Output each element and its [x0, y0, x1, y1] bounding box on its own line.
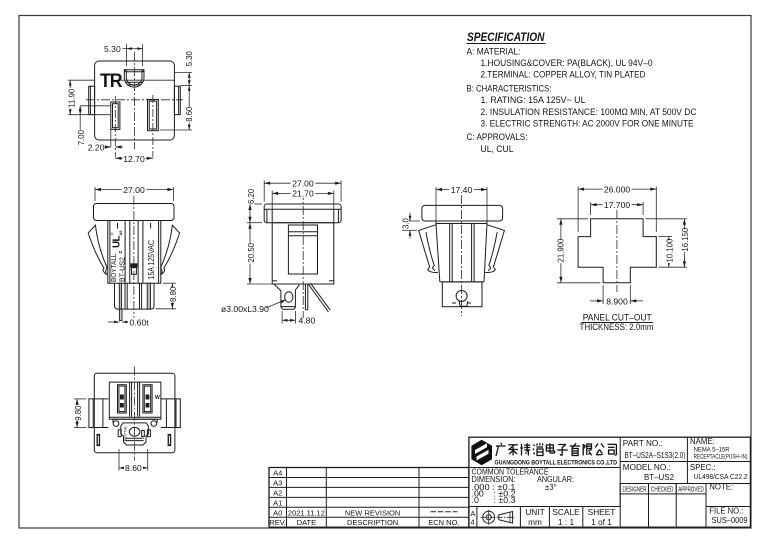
svg-text:26.000: 26.000 [604, 184, 631, 194]
svg-text:17.700: 17.700 [604, 200, 631, 210]
svg-text:BT-US2: BT-US2 [117, 257, 126, 282]
svg-text:SUS–0009: SUS–0009 [712, 516, 748, 525]
svg-text:8.60: 8.60 [125, 463, 142, 473]
svg-text:16.150: 16.150 [681, 227, 690, 252]
svg-text:A0: A0 [273, 508, 282, 517]
svg-text:DATE: DATE [297, 518, 316, 527]
svg-text:17.40: 17.40 [451, 185, 473, 195]
svg-text:A3: A3 [273, 478, 282, 487]
svg-text:3. ELECTRIC STRENGTH: AC 2: 3. ELECTRIC STRENGTH: AC 2000V FOR ONE M… [481, 118, 694, 128]
svg-text:UNIT: UNIT [525, 507, 544, 517]
svg-text:21.900: 21.900 [556, 238, 565, 263]
svg-text:NAME:: NAME: [690, 437, 715, 446]
svg-text:4.80: 4.80 [299, 316, 316, 326]
svg-text:SPECIFICATION: SPECIFICATION [467, 30, 545, 44]
svg-text:8.80: 8.80 [169, 286, 178, 302]
svg-text:5.30: 5.30 [185, 50, 194, 66]
svg-text:15A 125VAC: 15A 125VAC [147, 240, 156, 280]
svg-text:MODEL NO.:: MODEL NO.: [623, 463, 671, 472]
svg-text:2.TERMINAL: COPPER ALLOY, T: 2.TERMINAL: COPPER ALLOY, TIN PLATED [481, 70, 646, 80]
svg-text:1 of 1: 1 of 1 [591, 517, 612, 527]
svg-text:SPEC.:: SPEC.: [690, 463, 716, 472]
svg-text:11.90: 11.90 [68, 88, 77, 108]
svg-text:27.00: 27.00 [123, 185, 145, 195]
svg-text:6.20: 6.20 [247, 188, 256, 204]
svg-text:UL: UL [112, 236, 123, 248]
svg-text:SCALE: SCALE [552, 507, 580, 517]
svg-text:DESIGNER: DESIGNER [623, 485, 647, 494]
svg-text:5.30: 5.30 [104, 44, 121, 54]
svg-text:.0 : ±0.3: .0 : ±0.3 [472, 496, 516, 505]
svg-text:GUANGDONG BOYTALL ELECTRONICS: GUANGDONG BOYTALL ELECTRONICS CO.,LTD [495, 459, 618, 466]
svg-text:7.00: 7.00 [77, 129, 86, 145]
svg-text:mm: mm [528, 517, 542, 527]
svg-text:20.50: 20.50 [247, 242, 256, 262]
svg-text:W: W [155, 395, 160, 401]
svg-text:2. INSULATION RESISTANCE: 1: 2. INSULATION RESISTANCE: 100MΩ MIN, AT … [481, 107, 698, 117]
svg-text:8.60: 8.60 [185, 106, 194, 122]
svg-text:8.900: 8.900 [606, 296, 628, 306]
svg-text:c: c [118, 251, 124, 254]
svg-text:BT–US2A–S1S3(2.0): BT–US2A–S1S3(2.0) [625, 451, 686, 460]
svg-text:C: APPROVALS:: C: APPROVALS: [467, 132, 528, 142]
svg-text:3.0: 3.0 [402, 217, 411, 229]
svg-text:21.70: 21.70 [292, 189, 314, 199]
svg-text:A1: A1 [273, 498, 282, 507]
svg-text:ø3.00xL3.90: ø3.00xL3.90 [221, 304, 269, 314]
svg-text:1. RATING: 15A 125V~ UL: 1. RATING: 15A 125V~ UL [481, 95, 586, 105]
svg-text:BOYTAL: BOYTAL [123, 425, 128, 441]
svg-text:A2: A2 [273, 488, 282, 497]
svg-text:APPROVED: APPROVED [678, 485, 704, 494]
svg-text:12.70: 12.70 [123, 154, 145, 164]
svg-text:PART NO.:: PART NO.: [623, 439, 663, 448]
svg-text:UL498/CSA C22.2: UL498/CSA C22.2 [694, 472, 748, 481]
svg-text:REV.: REV. [269, 518, 286, 527]
svg-text:0.60t: 0.60t [130, 318, 150, 328]
svg-text:ECN NO.: ECN NO. [428, 518, 459, 527]
svg-text:A: MATERIAL:: A: MATERIAL: [467, 47, 521, 57]
svg-text:RECEPTACLE(PUSH–IN): RECEPTACLE(PUSH–IN) [694, 453, 748, 460]
svg-text:±3°: ±3° [545, 483, 557, 492]
svg-text:NEW REVISION: NEW REVISION [345, 508, 400, 517]
svg-text:TR: TR [100, 70, 123, 92]
svg-text:UL, CUL: UL, CUL [481, 144, 514, 154]
svg-text:DESCRIPTION: DESCRIPTION [347, 518, 398, 527]
svg-text:9.80: 9.80 [74, 405, 83, 421]
svg-text:1 : 1: 1 : 1 [558, 517, 575, 527]
svg-text:PANEL CUT–OUT: PANEL CUT–OUT [583, 311, 652, 322]
svg-text:FILE NO.:: FILE NO.: [709, 506, 743, 515]
svg-text:BT–US2: BT–US2 [644, 473, 674, 482]
svg-text:SHEET: SHEET [588, 507, 616, 517]
svg-text:10.100: 10.100 [665, 238, 674, 263]
svg-text:NOTE:: NOTE: [709, 483, 733, 492]
svg-text:B: CHARACTERISTICS:: B: CHARACTERISTICS: [467, 83, 552, 93]
svg-text:1.HOUSING&COVER: PA(BLACK),: 1.HOUSING&COVER: PA(BLACK), UL 94V–0 [481, 58, 653, 68]
svg-text:us: us [118, 230, 123, 236]
svg-text:2.20: 2.20 [88, 143, 105, 153]
svg-text:A4: A4 [273, 468, 282, 477]
svg-text:2021.11.12: 2021.11.12 [288, 508, 325, 517]
svg-text:THICKNESS: 2.0mm: THICKNESS: 2.0mm [580, 322, 654, 332]
svg-text:4: 4 [471, 517, 475, 526]
svg-text:CHECKED: CHECKED [651, 485, 674, 494]
svg-text:27.00: 27.00 [292, 178, 314, 188]
svg-text:®: ® [110, 232, 115, 235]
